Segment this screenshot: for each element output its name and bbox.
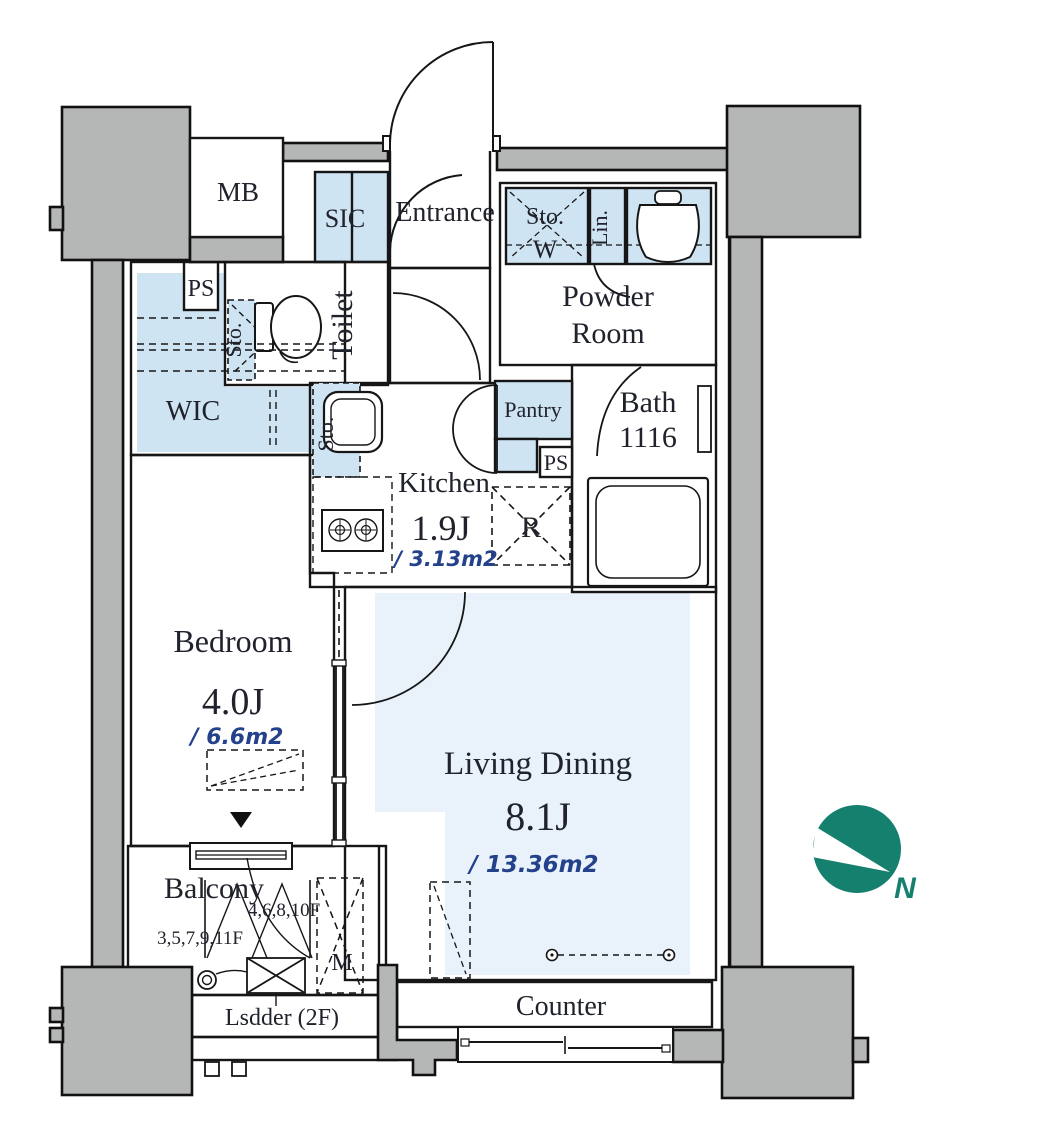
refrigerator-label: R (521, 511, 541, 544)
bedroom-window (190, 843, 292, 869)
bedroom-label: Bedroom (173, 623, 292, 659)
living-dining-floor (375, 593, 690, 975)
sic-label: SIC (325, 204, 365, 233)
stove-icon (322, 510, 383, 551)
counter-label: Counter (516, 991, 607, 1022)
left-wall-column (92, 260, 123, 967)
ps-upper-label: PS (188, 276, 215, 302)
pillar-bottom-right (722, 967, 853, 1098)
window-cap-left (461, 1039, 469, 1046)
pillar-top-right (727, 106, 860, 237)
toilet-label: Toilet (326, 290, 359, 360)
curtain-dot-right (667, 953, 670, 956)
ps-lower-label: PS (544, 450, 568, 475)
pillar-top-left (62, 107, 190, 260)
evacuation-hatch-icon (247, 958, 305, 1006)
pillar-top-left-tab (50, 207, 63, 230)
curtain-dot-left (550, 953, 553, 956)
right-wall-column (730, 237, 762, 967)
pillar-bottom-left (62, 967, 192, 1095)
pantry-label: Pantry (504, 397, 561, 422)
wall-under-mb (190, 237, 283, 262)
ladder-label: Lsdder (2F) (225, 1005, 339, 1031)
window-marker-triangle (230, 812, 252, 828)
kitchen-storage-label: Sto. (313, 417, 338, 452)
entrance-label: Entrance (395, 197, 495, 228)
living-label: Living Dining (444, 746, 632, 782)
bedroom-size-label: 4.0J (202, 681, 264, 723)
bedroom-details (207, 750, 303, 828)
bath-label: Bath (620, 386, 677, 419)
north-label: N (894, 872, 917, 905)
divider-cap-1 (332, 660, 346, 666)
corridor-door-arc (393, 293, 480, 380)
lower-band (192, 1037, 397, 1060)
mechanical-label: M (331, 950, 352, 976)
mb-label: MB (217, 177, 259, 207)
powder-room-label-2: Room (571, 317, 644, 350)
counter-window (458, 1027, 673, 1062)
divider-cap-2 (332, 777, 346, 783)
balcony-floors-upper: 4,6,8,10F (248, 900, 320, 921)
pillar-bottom-right-tab (853, 1038, 868, 1062)
entrance-door-opening (388, 136, 495, 151)
drain-pipe (216, 970, 247, 974)
bottom-fittings (205, 1062, 246, 1076)
bath-size-label: 1116 (619, 421, 677, 454)
pantry-sub-box (495, 439, 537, 472)
bedroom-dashed-diag2 (211, 770, 299, 786)
fitting-square-1 (205, 1062, 219, 1076)
kitchen-area-label: / 3.13m2 (391, 547, 497, 571)
compass: N (812, 805, 917, 905)
corridor (390, 268, 490, 383)
wic-label: WIC (166, 396, 220, 427)
vanity-basin (637, 205, 699, 262)
living-size-label: 8.1J (505, 794, 571, 839)
balcony-floors-lower: 3,5,7,9,11F (157, 928, 243, 949)
pillar-bottom-left-tab2 (50, 1028, 63, 1042)
window-cap-right (662, 1045, 670, 1052)
top-wall-left (283, 143, 388, 161)
floor-plan: MB SIC Entrance PS Sto. Toilet WIC Sto. … (0, 0, 1041, 1142)
drain-icon (198, 971, 216, 989)
toilet-bowl-icon (271, 296, 321, 358)
wall-strip-bottom-right (673, 1030, 723, 1062)
door-jamb-left (383, 136, 390, 151)
fitting-square-2 (232, 1062, 246, 1076)
kitchen-size-label: 1.9J (411, 508, 470, 548)
divider-cap-3 (332, 840, 346, 846)
top-wall-right (497, 148, 730, 170)
bedroom-dashed-diag1 (211, 754, 299, 786)
bath-shelf (698, 386, 711, 452)
living-area-label: / 13.36m2 (466, 852, 598, 878)
bathtub-inner (596, 486, 700, 578)
floor-plan-page: MB SIC Entrance PS Sto. Toilet WIC Sto. … (0, 0, 1041, 1142)
pillar-bottom-left-tab1 (50, 1008, 63, 1022)
powder-storage-label: Sto. (526, 204, 564, 230)
kitchen-label: Kitchen (398, 467, 490, 499)
bedroom-area-label: / 6.6m2 (188, 725, 284, 750)
powder-room-label-1: Powder (562, 280, 654, 313)
entrance-door (383, 42, 500, 268)
entrance-door-arc (390, 42, 493, 143)
washer-label: W (533, 235, 558, 264)
vanity-faucet (655, 191, 681, 204)
kitchen-door-arc (453, 385, 497, 473)
linen-label: Lin. (587, 210, 612, 246)
door-jamb-right (493, 136, 500, 151)
toilet-storage-label: Sto. (221, 323, 246, 358)
